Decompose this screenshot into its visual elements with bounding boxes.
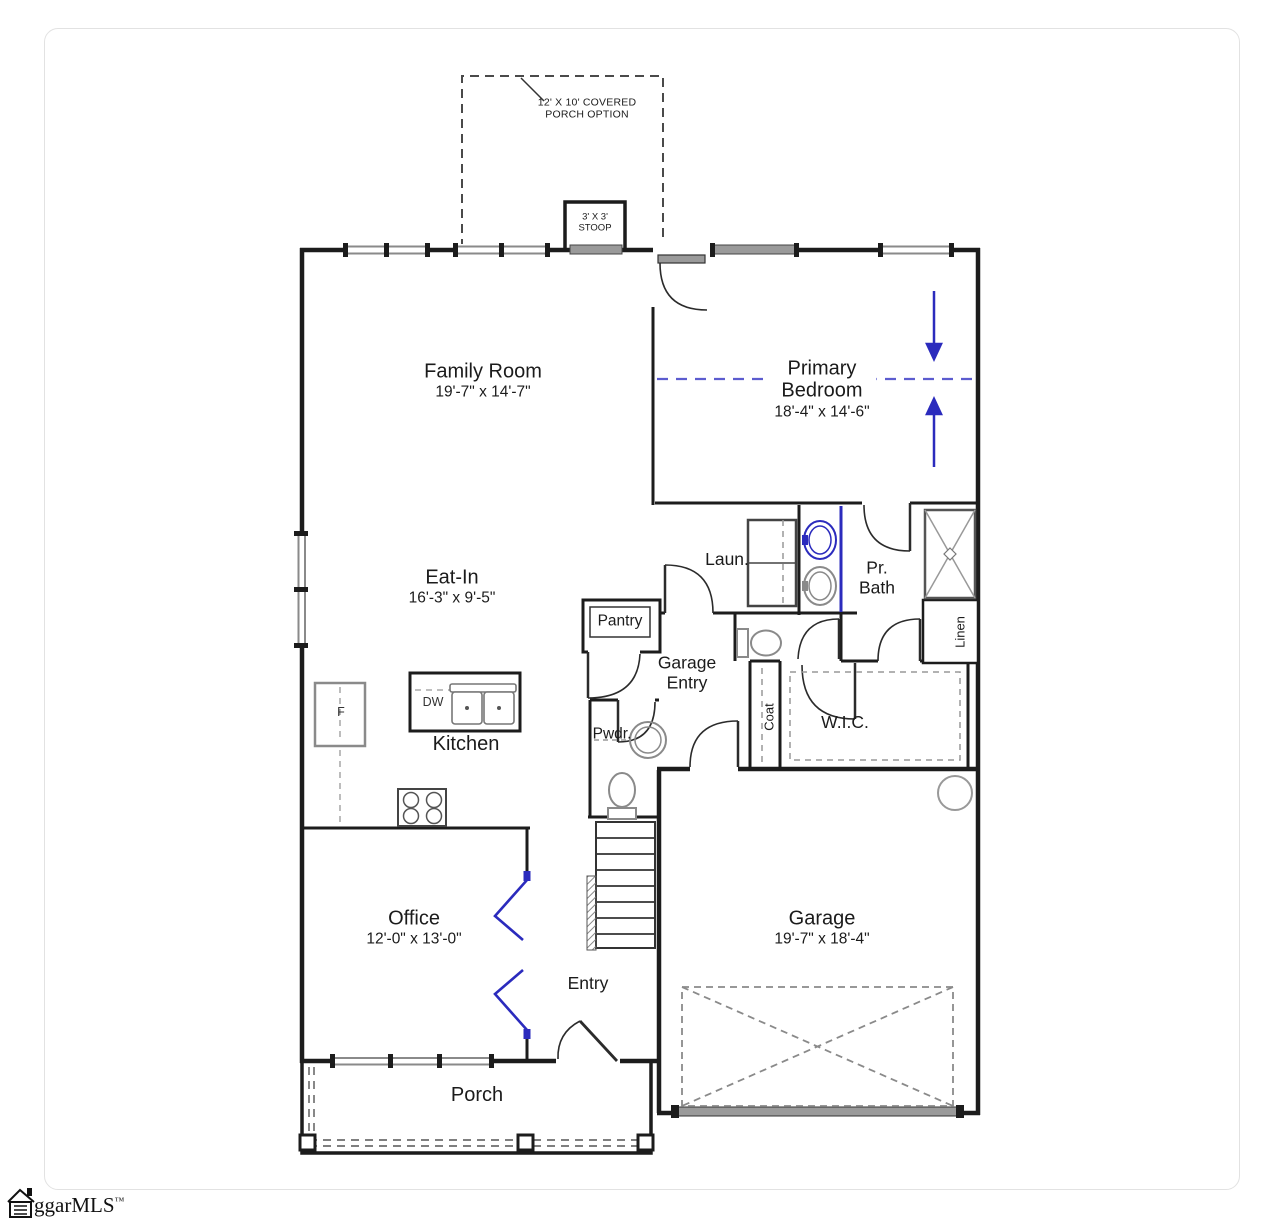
shower xyxy=(925,510,975,598)
porch-structure xyxy=(300,1063,653,1153)
covered-porch-label: 12' X 10' COVERED PORCH OPTION xyxy=(538,97,636,121)
stoop-door xyxy=(570,245,622,254)
primary-bath-label: Pr. Bath xyxy=(859,558,895,597)
coat-label: Coat xyxy=(763,703,778,730)
porch-post xyxy=(638,1135,653,1150)
linen-label: Linen xyxy=(954,616,969,648)
garage-door xyxy=(671,1105,964,1118)
garage-label: Garage 19'-7" x 18'-4" xyxy=(774,908,869,949)
stair-railing xyxy=(587,876,596,950)
powder-toilet xyxy=(608,773,636,819)
vanity-sink xyxy=(802,567,836,605)
primary-bath-door-arc xyxy=(864,505,910,551)
porch-post xyxy=(518,1135,533,1150)
exterior-walls xyxy=(300,248,980,1115)
vanity-sink-blue xyxy=(802,521,836,559)
water-closet-door-arc xyxy=(798,619,839,659)
porch-label: Porch xyxy=(451,1084,503,1106)
windows-office-wall xyxy=(330,1054,494,1068)
water-closet-toilet xyxy=(737,629,781,657)
washer-dryer xyxy=(748,520,796,606)
fridge-label: F xyxy=(337,705,345,719)
family-room-label: Family Room 19'-7" x 14'-7" xyxy=(424,361,542,402)
eat-in-label: Eat-In 16'-3" x 9'-5" xyxy=(409,567,496,608)
office-label: Office 12'-0" x 13'-0" xyxy=(366,908,461,949)
floor-plan-drawing xyxy=(0,0,1284,1222)
wic-door-arc xyxy=(802,665,855,719)
mls-house-icon xyxy=(8,1188,34,1217)
office-french-doors xyxy=(495,871,531,1039)
primary-window-band xyxy=(712,245,796,254)
primary-bedroom-label: Primary Bedroom 18'-4" x 14'-6" xyxy=(767,357,876,420)
entry-label: Entry xyxy=(568,974,609,994)
pantry-door-arc xyxy=(588,654,640,698)
wic-label: W.I.C. xyxy=(821,713,869,733)
linen-closet xyxy=(923,600,978,663)
back-door-leaf xyxy=(658,255,705,263)
laundry-label: Laun. xyxy=(705,550,749,570)
kitchen-label: Kitchen xyxy=(433,733,500,755)
powder-label: Pwdr. xyxy=(593,725,632,742)
water-heater xyxy=(938,776,972,810)
bath-hall-door-arc xyxy=(878,619,920,661)
porch-post xyxy=(300,1135,315,1150)
garage-entry-label: Garage Entry xyxy=(658,653,716,692)
garage-parking-area xyxy=(682,987,953,1106)
wic-shelving-dashed xyxy=(790,672,960,760)
back-door-arc xyxy=(660,263,707,310)
window-left-wall xyxy=(294,531,308,648)
laundry-door-arc xyxy=(665,565,713,613)
garage-door-arc xyxy=(690,721,738,767)
pantry-label: Pantry xyxy=(598,612,643,629)
front-door-arc xyxy=(558,1021,580,1059)
stairs xyxy=(587,822,655,950)
dishwasher-label: DW xyxy=(423,695,444,709)
stoop-label: 3' X 3' STOOP xyxy=(578,212,611,233)
range-stove xyxy=(398,789,446,826)
mls-watermark: ggarMLS™ xyxy=(34,1193,124,1218)
